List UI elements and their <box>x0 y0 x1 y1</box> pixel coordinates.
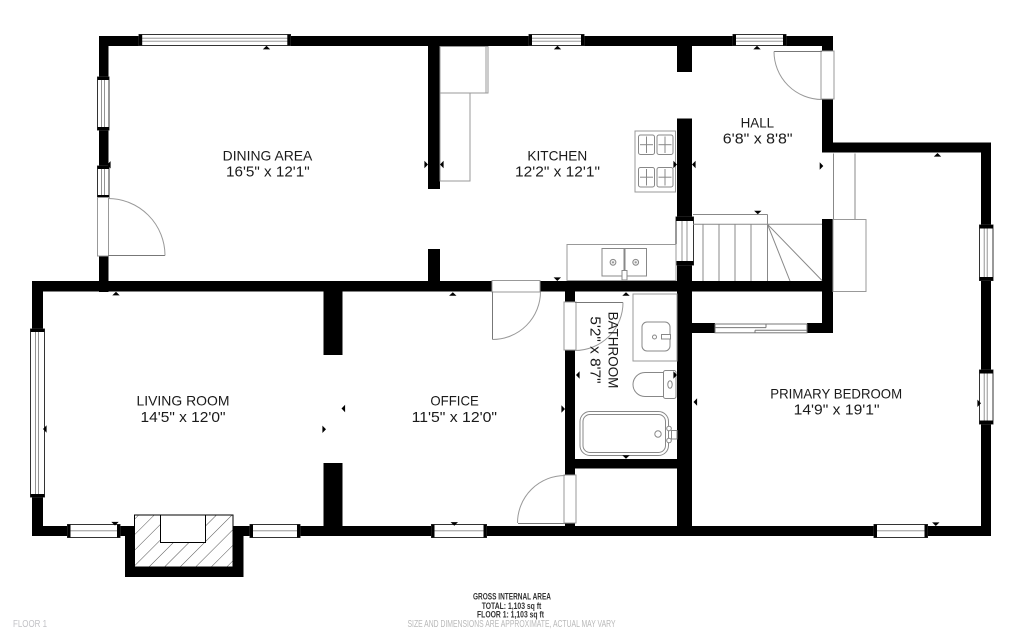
svg-text:KITCHEN: KITCHEN <box>527 148 587 164</box>
svg-text:PRIMARY BEDROOM: PRIMARY BEDROOM <box>770 386 902 402</box>
svg-text:SIZE AND DIMENSIONS ARE APPROX: SIZE AND DIMENSIONS ARE APPROXIMATE, ACT… <box>408 618 616 630</box>
svg-text:16'5" x 12'1": 16'5" x 12'1" <box>226 164 310 181</box>
svg-text:12'2" x 12'1": 12'2" x 12'1" <box>515 164 600 181</box>
svg-text:LIVING ROOM: LIVING ROOM <box>137 393 230 409</box>
svg-text:5'2" x 8'7": 5'2" x 8'7" <box>587 316 604 383</box>
svg-text:14'5" x 12'0": 14'5" x 12'0" <box>141 409 226 426</box>
svg-text:11'5" x 12'0": 11'5" x 12'0" <box>412 409 497 426</box>
svg-text:OFFICE: OFFICE <box>430 393 478 409</box>
svg-text:HALL: HALL <box>741 115 775 131</box>
svg-text:14'9" x 19'1": 14'9" x 19'1" <box>794 402 880 419</box>
svg-text:DINING AREA: DINING AREA <box>223 148 313 164</box>
svg-text:6'8" x 8'8": 6'8" x 8'8" <box>723 131 793 148</box>
svg-text:FLOOR 1: FLOOR 1 <box>13 619 47 630</box>
svg-text:BATHROOM: BATHROOM <box>606 312 622 389</box>
